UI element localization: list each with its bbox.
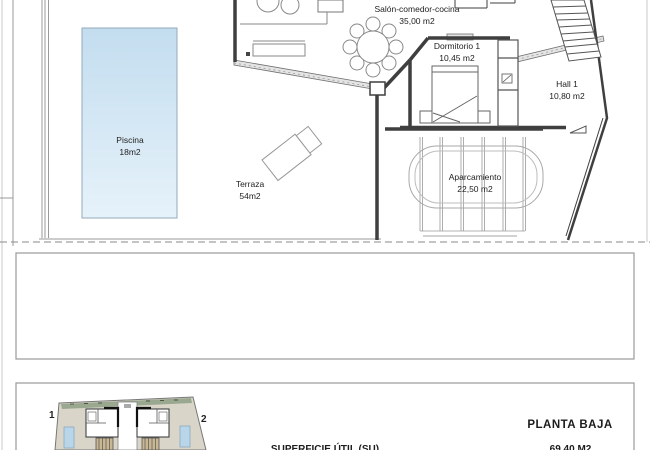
room-name: Aparcamiento — [425, 172, 525, 184]
room-name: Salón-comedor-cocina — [357, 4, 477, 16]
room-area: 10,80 m2 — [527, 91, 607, 103]
floor-plan-drawing — [0, 0, 650, 450]
room-area: 35,00 m2 — [357, 16, 477, 28]
site-plan-center-column — [118, 402, 137, 450]
bed-icon — [420, 66, 490, 123]
site-plan-pool-left — [64, 427, 74, 448]
upper-frame — [16, 253, 634, 359]
room-label-aparcamiento: Aparcamiento 22,50 m2 — [425, 172, 525, 196]
room-name: Hall 1 — [527, 79, 607, 91]
room-label-salon: Salón-comedor-cocina 35,00 m2 — [357, 4, 477, 28]
room-label-piscina: Piscina 18m2 — [95, 135, 165, 159]
sofa-icon — [253, 41, 305, 56]
site-plan-unit-1-label: 1 — [49, 410, 55, 421]
plot-boundary-lines — [0, 0, 381, 246]
room-name: Dormitorio 1 — [412, 41, 502, 53]
pool-shape — [82, 28, 177, 218]
planter-icon — [246, 52, 250, 56]
room-area: 54m2 — [215, 191, 285, 203]
surface-util-value: 69,40 M2 — [518, 444, 623, 450]
room-area: 22,50 m2 — [425, 184, 525, 196]
room-label-dormitorio-1: Dormitorio 1 10,45 m2 — [412, 41, 502, 65]
site-plan-center-mark — [124, 404, 131, 408]
wall-pillar — [370, 82, 385, 95]
room-area: 18m2 — [95, 147, 165, 159]
room-label-terraza: Terraza 54m2 — [215, 179, 285, 203]
site-plan-unit-2-label: 2 — [201, 414, 207, 425]
floor-plan-page: Piscina 18m2 Salón-comedor-cocina 35,00 … — [0, 0, 650, 450]
plan-title: PLANTA BAJA — [505, 419, 635, 431]
sun-lounger-icon — [262, 125, 323, 181]
room-label-hall-1: Hall 1 10,80 m2 — [527, 79, 607, 103]
room-area: 10,45 m2 — [412, 53, 502, 65]
kitchen-counter-icon — [240, 0, 343, 24]
room-name: Terraza — [215, 179, 285, 191]
entrance-door-icon — [570, 126, 586, 133]
site-plan-pool-right — [180, 426, 190, 447]
room-name: Piscina — [95, 135, 165, 147]
site-plan-thumbnail — [55, 397, 206, 450]
surface-util-label: SUPERFICIE ÚTIL (SU) — [255, 444, 395, 450]
